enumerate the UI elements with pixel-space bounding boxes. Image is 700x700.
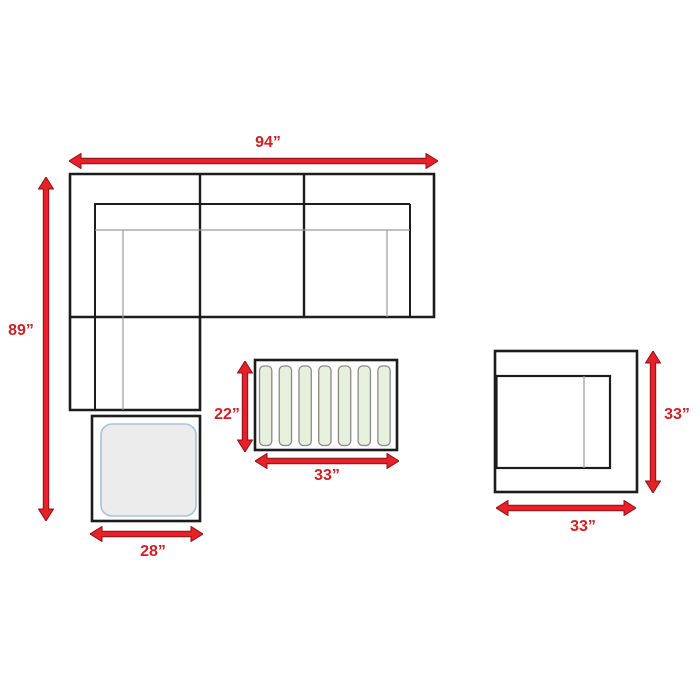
chair-width-label: 33” [553, 518, 613, 536]
sofa-depth-arrow [38, 177, 54, 521]
sofa-width-arrow [69, 153, 438, 169]
table-slat [299, 366, 311, 446]
sofa-depth-label: 89” [0, 322, 42, 340]
furniture-drawing [0, 0, 700, 700]
ottoman-cushion [101, 424, 196, 516]
chair-depth-label: 33” [654, 406, 700, 424]
table-slat [358, 366, 370, 446]
table-slats [260, 366, 391, 446]
table-slat [260, 366, 272, 446]
armchair [495, 351, 637, 492]
dimension-diagram: 94” 89” 22” 33” 28” 33” 33” [0, 0, 700, 700]
table-width-label: 33” [297, 467, 357, 485]
ottoman [92, 416, 200, 521]
chair-width-arrow [496, 500, 636, 516]
armchair-seat [497, 376, 611, 468]
table-slat [319, 366, 331, 446]
coffee-table [255, 360, 397, 450]
sofa-width-label: 94” [238, 134, 298, 152]
ottoman-width-arrow [90, 526, 203, 542]
table-slat [378, 366, 390, 446]
table-slat [279, 366, 291, 446]
ottoman-width-label: 28” [123, 543, 183, 561]
table-depth-label: 22” [197, 406, 257, 424]
table-slat [338, 366, 350, 446]
